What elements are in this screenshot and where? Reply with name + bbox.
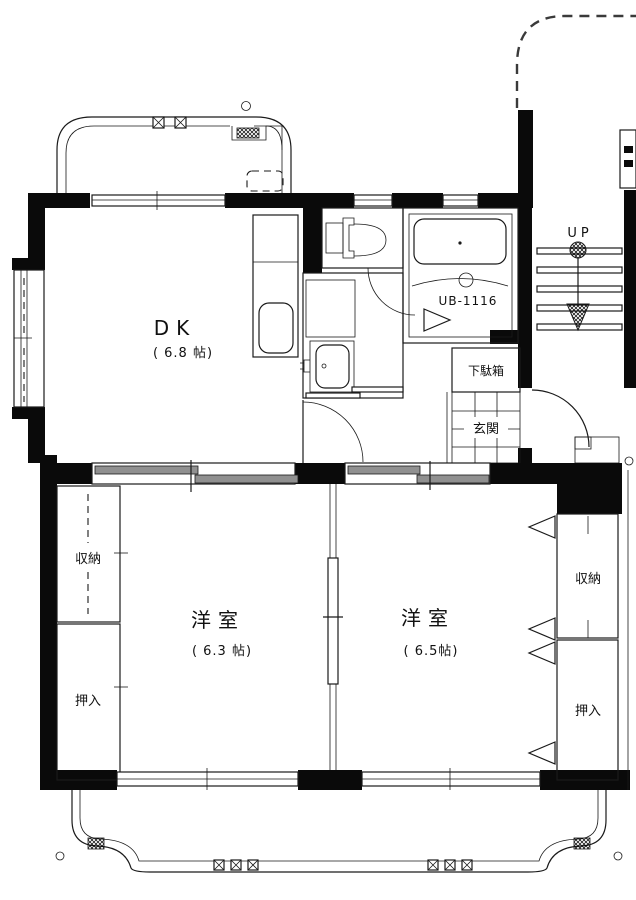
genkan: 玄関 [447,392,520,463]
room-toilet [322,208,415,315]
window-bedroom-left [117,768,298,790]
stairs: UP [537,226,622,330]
drain-icon [242,102,251,111]
balcony-bottom [56,790,622,872]
room-dk-label: DK [154,316,197,340]
toilet-door-arc [368,268,415,315]
toilet-icon [326,218,386,258]
bathtub-icon [414,219,506,264]
closet-right: 収納 [557,514,618,638]
stairs-post-icon [570,242,586,258]
entrance-door [532,390,633,465]
room-unit-bath: UB-1116 [403,208,518,343]
bedroom-left-label: 洋室 [191,608,245,632]
stairs-up-label: UP [567,226,592,241]
bedroom-right-size: ( 6.5帖) [404,644,459,659]
window-bedroom-right [362,768,540,790]
unit-bath-label: UB-1116 [439,294,498,308]
doorbell-icon [625,457,633,465]
sliding-door-dk-bedroom [92,460,298,492]
closet-left: 収納 [57,486,128,622]
meter-box [620,130,636,188]
room-bedroom-left: 洋室 ( 6.3 帖) [191,608,252,659]
getabako: 下駄箱 [452,348,520,392]
closet-door-marks [529,516,555,764]
drain-icon [614,852,622,860]
oshiire-right-label: 押入 [575,704,601,719]
kitchen-counter [253,215,298,357]
vent-icon [214,860,472,870]
floor-plan-drawing: DK ( 6.8 帖) [0,0,636,900]
washing-machine-space [306,280,355,337]
room-dk: DK ( 6.8 帖) [153,215,298,361]
floor-plan: DK ( 6.8 帖) [0,0,636,900]
ac-unit-outline [247,171,283,191]
sliding-door-hall-bedroom [345,461,490,490]
bedroom-partition [323,484,343,770]
window-dk-top [92,191,225,210]
kitchen-sink [259,303,293,353]
bath-door-mark [424,309,450,331]
bedroom-left-size: ( 6.3 帖) [192,644,252,659]
window-toilet [354,195,392,206]
hall-door [303,400,363,463]
washbasin-icon [300,341,354,392]
closet-right-label: 収納 [575,572,601,587]
bedroom-right-label: 洋室 [401,606,455,630]
washroom-sliding-door [306,387,403,398]
room-dk-size: ( 6.8 帖) [153,346,213,361]
balcony-top [57,102,291,194]
closet-left-label: 収納 [75,552,101,567]
porch-step [575,437,619,463]
window-bath [443,195,478,206]
room-bedroom-right: 洋室 ( 6.5帖) [401,606,458,659]
drain-icon [56,852,64,860]
window-dk-left-bay [14,270,44,407]
oshiire-left-label: 押入 [75,694,101,709]
common-area-outline [517,16,636,108]
room-washroom [300,273,403,398]
oshiire-left: 押入 [57,624,128,780]
getabako-label: 下駄箱 [468,363,504,378]
bath-drain-icon [459,273,473,287]
oshiire-right: 押入 [557,640,618,780]
genkan-label: 玄関 [473,422,499,437]
